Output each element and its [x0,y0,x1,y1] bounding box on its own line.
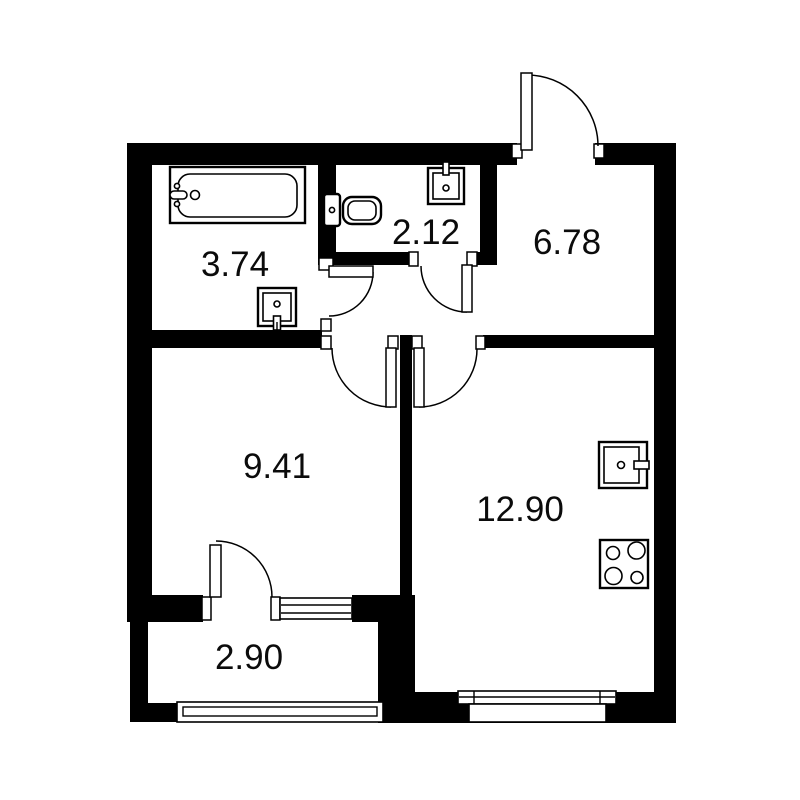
kitchen-sink-icon [599,442,649,488]
bathroom-area-label: 3.74 [201,245,269,284]
door-jamb [476,336,485,349]
door-leaf [414,348,424,407]
door-jamb [409,252,418,266]
kitchen-door [412,336,485,407]
door-jamb [594,144,604,158]
door-swing-arc [329,272,373,316]
bathtub-icon [170,167,305,223]
door-leaf [521,73,532,150]
door-swing-arc [419,349,477,407]
door-swing-arc [332,348,391,407]
bathroom-door [319,258,373,331]
door-swing-arc [421,266,467,312]
door-leaf [386,348,396,407]
kitchen-area-label: 12.90 [476,490,564,529]
toilet-icon [324,194,381,226]
door-leaf [210,545,221,597]
floor-plan: 3.74 2.12 6.78 9.41 12.90 2.90 [0,0,800,800]
wall-right [654,143,676,723]
wall-left [127,143,152,622]
door-jamb [412,336,422,349]
wall-bedroom-bottom-left [127,595,203,622]
wall-toilet-hall [480,165,497,260]
bedroom-door [321,336,398,407]
door-jamb [202,597,211,620]
door-leaf [329,266,373,277]
balcony-area-label: 2.90 [215,638,283,677]
wall-balcony-left [130,622,148,707]
door-swing-arc [216,541,272,597]
door-jamb [467,252,477,266]
bedroom-balcony-window [280,598,352,619]
hallway-area-label: 6.78 [533,223,601,262]
door-jamb [388,336,398,349]
entrance-door [512,73,604,158]
floor-plan-drawing: 3.74 2.12 6.78 9.41 12.90 2.90 [0,0,800,800]
wall-bathroom-bottom [152,330,322,348]
toilet-area-label: 2.12 [392,213,460,252]
balcony-door [202,541,280,620]
door-jamb [321,319,331,331]
kitchen-window [458,691,616,722]
wall-hall-kitchen [483,335,657,348]
balcony-glazing [177,702,383,722]
wall-top-left [127,143,517,165]
window-sill [469,704,606,722]
stove-icon [600,540,648,588]
door-leaf [462,265,472,312]
bedroom-area-label: 9.41 [243,447,311,486]
door-jamb [271,597,280,620]
door-jamb [321,336,331,349]
toilet-door [409,252,477,312]
wall-balcony-corner [130,703,177,722]
bathroom-washbasin-icon [258,288,296,330]
door-swing-arc [527,75,598,146]
toilet-washbasin-icon [428,162,464,204]
